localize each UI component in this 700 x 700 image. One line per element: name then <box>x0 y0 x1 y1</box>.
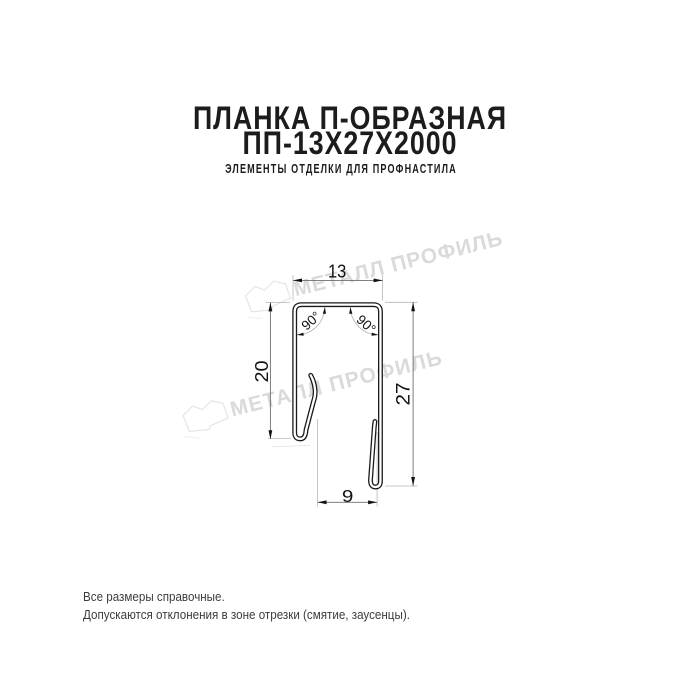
svg-text:13: 13 <box>328 260 346 281</box>
svg-text:9: 9 <box>342 486 354 506</box>
svg-text:90°: 90° <box>353 312 378 337</box>
svg-text:20: 20 <box>251 361 272 383</box>
svg-text:27: 27 <box>394 383 415 406</box>
svg-text:90°: 90° <box>298 308 323 333</box>
svg-text:МЕТАЛЛ ПРОФИЛЬ: МЕТАЛЛ ПРОФИЛЬ <box>291 227 504 301</box>
